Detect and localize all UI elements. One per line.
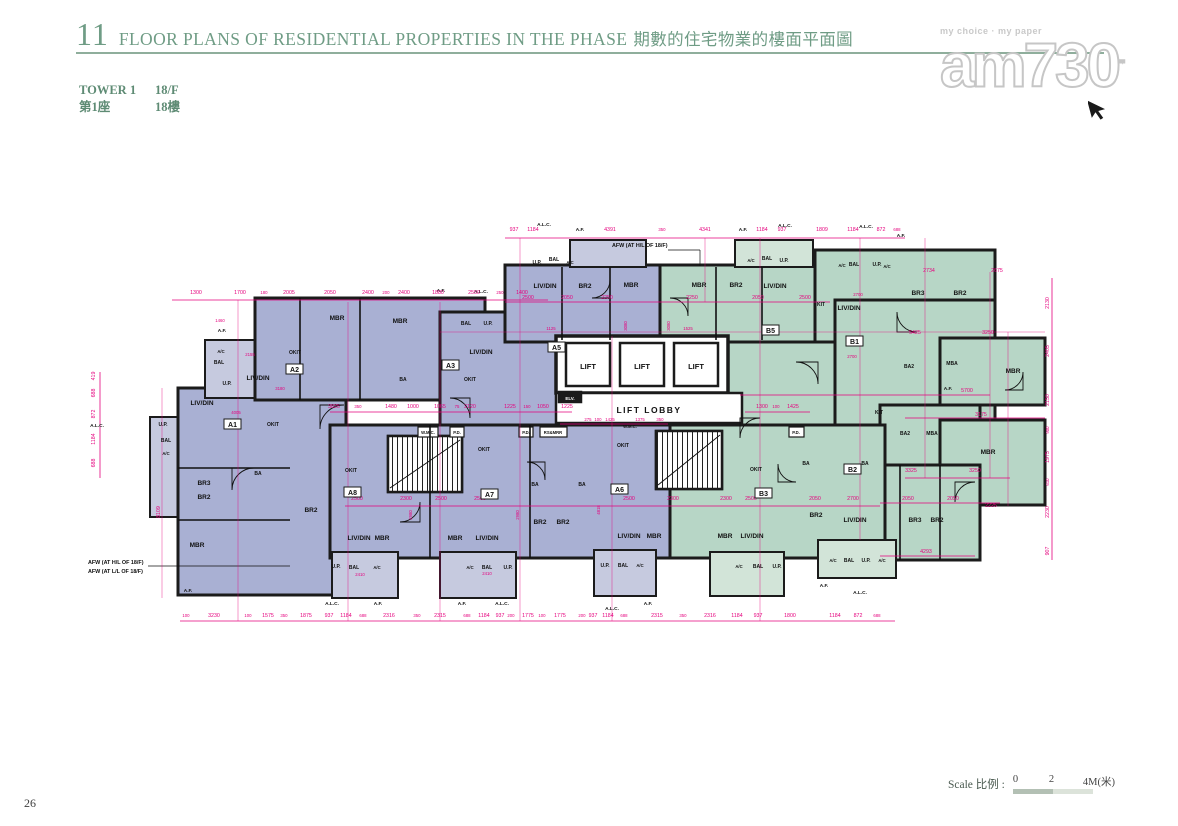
- plan-label: A/C: [636, 563, 643, 568]
- plan-label: 1225: [504, 404, 516, 410]
- plan-label: A.L.C.: [495, 601, 509, 607]
- plan-label: 2300: [667, 496, 679, 502]
- plan-label: KIT: [817, 302, 825, 308]
- plan-label: A.L.C.: [90, 423, 104, 429]
- plan-label: 2410: [482, 571, 492, 576]
- plan-label: LIV/DIN: [740, 533, 763, 540]
- plan-room-block: [505, 265, 660, 342]
- plan-label: MBA: [926, 431, 938, 437]
- plan-label: BR3: [911, 290, 924, 297]
- plan-label: MBR: [393, 318, 408, 325]
- plan-label: 4341: [699, 227, 711, 233]
- plan-label: MBR: [718, 533, 733, 540]
- scale-tick-2: 2: [1049, 774, 1054, 785]
- plan-label: 1125: [546, 326, 556, 331]
- plan-label: 2050: [324, 290, 336, 296]
- unit-badge-label: B5: [766, 328, 775, 335]
- plan-label: 4818: [596, 505, 601, 515]
- plan-label: BR2: [729, 282, 742, 289]
- plan-label: U.P.: [872, 262, 882, 268]
- plan-label: 688: [91, 459, 97, 468]
- plan-label: 907: [1045, 547, 1051, 556]
- plan-label: 2050: [902, 496, 914, 502]
- plan-label: 688: [893, 227, 901, 232]
- plan-label: 3325: [905, 468, 917, 474]
- plan-label: 4293: [920, 549, 932, 555]
- scale-segment-light: [1053, 789, 1093, 794]
- unit-badge-label: A1: [228, 422, 237, 429]
- plan-room-block: [205, 340, 257, 398]
- plan-label: 4391: [604, 227, 616, 233]
- plan-label: OKIT: [617, 443, 629, 449]
- plan-label: 2225: [985, 503, 997, 509]
- plan-label: A.F.: [944, 386, 953, 392]
- plan-label: 1375: [635, 417, 645, 422]
- plan-label: U.P.: [532, 260, 542, 266]
- plan-label: 1000: [407, 404, 419, 410]
- plan-label: 937: [496, 613, 505, 619]
- plan-label: 2500: [799, 295, 811, 301]
- plan-label: OKIT: [464, 377, 476, 383]
- unit-badge-label: A7: [485, 492, 494, 499]
- plan-label: U.P.: [503, 565, 513, 571]
- scale-tick-4m: 4M(米): [1083, 774, 1115, 789]
- plan-label: 100: [182, 613, 190, 618]
- plan-label: LIFT: [688, 362, 704, 371]
- plan-label: BA2: [904, 364, 914, 370]
- plan-label: 2316: [383, 613, 395, 619]
- plan-label: LIV/DIN: [533, 283, 556, 290]
- plan-label: BAL: [844, 558, 854, 564]
- plan-label: P.D.: [522, 430, 530, 435]
- plan-label: 275: [584, 417, 592, 422]
- plan-label: W.M.C.: [623, 424, 637, 429]
- plan-label: U.P.: [222, 381, 232, 387]
- unit-badge-label: A8: [348, 490, 357, 497]
- plan-label: 2400: [398, 290, 410, 296]
- unit-badge-label: A5: [552, 345, 561, 352]
- plan-label: AFW (AT L/L OF 18/F): [88, 569, 143, 575]
- plan-label: BAL: [549, 257, 559, 263]
- plan-label: BAL: [461, 321, 471, 327]
- plan-label: MBA: [946, 361, 958, 367]
- plan-label: OKIT: [267, 422, 279, 428]
- plan-label: BA: [399, 377, 407, 383]
- plan-label: 100: [772, 404, 780, 409]
- plan-label: 872: [854, 613, 863, 619]
- plan-label: A/C: [829, 558, 836, 563]
- plan-label: LIV/DIN: [617, 533, 640, 540]
- plan-label: 937: [325, 613, 334, 619]
- plan-label: 2050: [561, 295, 573, 301]
- plan-label: 3175: [975, 412, 987, 418]
- plan-room-block: [178, 388, 346, 595]
- plan-label: OKIT: [478, 447, 490, 453]
- plan-label: 2550: [468, 290, 480, 296]
- plan-label: 610: [1045, 478, 1050, 486]
- plan-label: 2050: [947, 496, 959, 502]
- plan-label: 1184: [340, 613, 351, 619]
- plan-label: MBR: [692, 282, 707, 289]
- plan-label: A.L.C.: [325, 601, 339, 607]
- plan-label: A.F.: [218, 328, 227, 334]
- plan-label: A.F.: [644, 601, 653, 607]
- plan-label: 75: [455, 404, 460, 409]
- plan-label: AFW (AT H/L OF 18/F): [88, 560, 144, 566]
- plan-label: U.P.: [600, 563, 610, 569]
- plan-label: P.D.: [453, 430, 461, 435]
- plan-label: BA: [861, 461, 869, 467]
- plan-label: MBR: [624, 282, 639, 289]
- plan-label: 1065: [434, 404, 446, 410]
- plan-label: BA: [254, 471, 262, 477]
- plan-label: 1184: [478, 613, 489, 619]
- plan-label: BR2: [533, 519, 546, 526]
- plan-label: 8109: [156, 506, 162, 518]
- plan-label: MBR: [330, 315, 345, 322]
- plan-label: A.F.: [184, 588, 193, 594]
- plan-label: LIV/DIN: [469, 349, 492, 356]
- plan-label: BAL: [753, 564, 763, 570]
- unit-badge-label: B2: [848, 467, 857, 474]
- plan-label: 200: [382, 290, 390, 295]
- plan-label: P.D.: [792, 430, 800, 435]
- plan-room-block: [710, 552, 784, 596]
- plan-label: A.F.: [739, 227, 748, 233]
- plan-label: A/C: [217, 349, 224, 354]
- plan-label: AFW (AT H/L OF 18/F): [612, 243, 668, 249]
- plan-label: KIT: [875, 410, 883, 416]
- plan-label: 1050: [537, 404, 549, 410]
- plan-label: 1525: [683, 326, 693, 331]
- plan-label: LIV/DIN: [763, 283, 786, 290]
- plan-label: BA2: [900, 431, 910, 437]
- plan-label: 3230: [208, 613, 220, 619]
- plan-label: 200: [578, 613, 586, 618]
- plan-label: 1425: [605, 417, 615, 422]
- plan-label: A.L.C.: [859, 224, 873, 230]
- plan-label: 2700: [847, 496, 859, 502]
- plan-label: BAL: [618, 563, 628, 569]
- plan-label: 350: [413, 613, 421, 618]
- plan-label: LIV/DIN: [347, 535, 370, 542]
- plan-label: 2120: [464, 404, 476, 410]
- plan-label: 100: [538, 613, 546, 618]
- plan-label: 350: [679, 613, 687, 618]
- plan-label: OKIT: [289, 350, 301, 356]
- plan-label: 2315: [434, 613, 446, 619]
- plan-label: U.P.: [861, 558, 871, 564]
- plan-label: 350: [354, 404, 362, 409]
- plan-label: 2675: [991, 268, 1003, 274]
- plan-label: MBR: [190, 542, 205, 549]
- plan-room-block: [150, 417, 180, 517]
- plan-label: LIFT: [634, 362, 650, 371]
- plan-label: 688: [463, 613, 471, 618]
- plan-label: OKIT: [750, 467, 762, 473]
- plan-label: 1480: [385, 404, 397, 410]
- plan-label: 900: [1045, 426, 1050, 434]
- plan-label: LIV/DIN: [475, 535, 498, 542]
- floor-plan-drawing: LIV/DINLIV/DINLIV/DINLIV/DINLIV/DINLIV/D…: [0, 0, 1178, 826]
- plan-label: 1875: [300, 613, 312, 619]
- plan-label: BR2: [953, 290, 966, 297]
- plan-label: 937: [778, 227, 787, 233]
- plan-label: A.F.: [576, 227, 585, 233]
- plan-label: U.P.: [158, 422, 168, 428]
- plan-label: A/C: [566, 260, 573, 265]
- plan-label: 2230: [1045, 506, 1051, 518]
- unit-badge-label: B1: [850, 339, 859, 346]
- plan-label: MBR: [1006, 368, 1021, 375]
- scale-bar-graphic: 0 2 4M(米): [1013, 776, 1163, 800]
- plan-label: 2734: [923, 268, 935, 274]
- plan-label: 872: [91, 410, 97, 419]
- plan-label: 1184: [527, 227, 538, 233]
- plan-label: 2500: [435, 496, 447, 502]
- plan-label: 1700: [234, 290, 246, 296]
- plan-room-block: [440, 552, 516, 598]
- plan-label: 350: [280, 613, 288, 618]
- plan-label: U.P.: [331, 564, 341, 570]
- plan-label: 2005: [283, 290, 295, 296]
- plan-label: 2500: [522, 295, 534, 301]
- plan-label: 1184: [602, 613, 613, 619]
- plan-label: BR2: [578, 283, 591, 290]
- plan-label: A.F.: [458, 601, 467, 607]
- plan-label: 2700: [853, 292, 863, 297]
- plan-label: BAL: [349, 565, 359, 571]
- plan-label: 2980: [515, 510, 520, 520]
- page-number: 26: [24, 796, 36, 811]
- plan-label: LIV/DIN: [190, 400, 213, 407]
- plan-label: 688: [359, 613, 367, 618]
- plan-label: A.F.: [820, 583, 829, 589]
- plan-label: ELV.: [565, 396, 574, 401]
- plan-label: 150: [523, 404, 531, 409]
- plan-label: A.F.: [374, 601, 383, 607]
- plan-room-block: [332, 552, 398, 598]
- plan-label: BA: [531, 482, 539, 488]
- plan-label: 1775: [554, 613, 566, 619]
- unit-badge-label: A3: [446, 363, 455, 370]
- plan-label: U.P.: [779, 258, 789, 264]
- plan-label: A/C: [466, 565, 473, 570]
- plan-label: A.L.C.: [537, 222, 551, 228]
- plan-label: A/C: [838, 263, 845, 268]
- plan-label: 1809: [816, 227, 828, 233]
- plan-label: MBR: [647, 533, 662, 540]
- plan-label: 3180: [275, 386, 285, 391]
- plan-label: A/C: [878, 558, 885, 563]
- plan-label: BA: [578, 482, 586, 488]
- brochure-page: 11 FLOOR PLANS OF RESIDENTIAL PROPERTIES…: [0, 0, 1178, 826]
- plan-label: 180: [260, 290, 268, 295]
- plan-label: 688: [620, 613, 628, 618]
- plan-label: MBR: [375, 535, 390, 542]
- plan-label: 937: [589, 613, 598, 619]
- plan-label: 2410: [355, 572, 365, 577]
- plan-label: 1300: [756, 404, 768, 410]
- plan-label: BAL: [161, 438, 171, 444]
- plan-label: BAL: [849, 262, 859, 268]
- plan-label: 2405: [1045, 345, 1051, 357]
- plan-label: 100: [244, 613, 252, 618]
- plan-label: 1300: [190, 290, 202, 296]
- plan-label: A/C: [373, 565, 380, 570]
- plan-label: 2700: [847, 354, 857, 359]
- plan-label: 937: [510, 227, 519, 233]
- plan-label: 2250: [686, 295, 698, 301]
- plan-label: LIV/DIN: [837, 305, 860, 312]
- plan-label: A.F.: [897, 233, 906, 239]
- plan-label: BR2: [556, 519, 569, 526]
- plan-label: U.P.: [483, 321, 493, 327]
- plan-label: RS&MRR: [544, 430, 562, 435]
- plan-label: 3250: [982, 330, 994, 336]
- plan-label: 2980: [408, 510, 413, 520]
- scale-segment-dark: [1013, 789, 1053, 794]
- plan-label: 1184: [756, 227, 767, 233]
- plan-label: BAL: [762, 256, 772, 262]
- plan-label: 100: [594, 417, 602, 422]
- plan-label: 1184: [91, 433, 97, 444]
- plan-label: BR3: [908, 517, 921, 524]
- plan-label: U.P.: [772, 564, 782, 570]
- plan-label: 1800: [784, 613, 796, 619]
- plan-label: BR2: [930, 517, 943, 524]
- unit-badge-label: A6: [615, 487, 624, 494]
- plan-label: 1425: [787, 404, 799, 410]
- plan-label: 2400: [362, 290, 374, 296]
- plan-label: 2250: [601, 295, 613, 301]
- plan-label: 688: [91, 389, 97, 398]
- plan-label: LIV/DIN: [843, 517, 866, 524]
- unit-badge-label: A2: [290, 367, 299, 374]
- plan-label: 1225: [561, 404, 573, 410]
- plan-label: 2300: [400, 496, 412, 502]
- plan-label: 3250: [969, 468, 981, 474]
- unit-badge-label: B3: [759, 491, 768, 498]
- plan-room-block: [594, 550, 656, 596]
- plan-label: A.L.C.: [853, 590, 867, 596]
- plan-label: A/C: [162, 451, 169, 456]
- plan-label: 872: [877, 227, 886, 233]
- plan-label: MBR: [981, 449, 996, 456]
- plan-label: LIFT: [580, 362, 596, 371]
- plan-label: 2316: [704, 613, 716, 619]
- plan-label: A/C: [735, 564, 742, 569]
- plan-label: A.L.C.: [605, 606, 619, 612]
- plan-label: 937: [754, 613, 763, 619]
- plan-label: BA: [802, 461, 810, 467]
- plan-label: BR2: [197, 494, 210, 501]
- plan-label: 1184: [731, 613, 742, 619]
- plan-label: 2150: [1045, 394, 1051, 406]
- scale-bar: Scale 比例 : 0 2 4M(米): [948, 776, 1163, 800]
- plan-label: 3825: [328, 404, 340, 410]
- plan-label: 3080: [666, 321, 671, 331]
- plan-label: 350: [658, 227, 666, 232]
- plan-label: 2500: [623, 496, 635, 502]
- scale-tick-0: 0: [1013, 774, 1018, 785]
- plan-label: 2050: [752, 295, 764, 301]
- plan-label: BAL: [214, 360, 224, 366]
- plan-label: W.M.C.: [421, 430, 435, 435]
- plan-label: 1880: [432, 290, 444, 296]
- plan-label: 1975: [1045, 451, 1051, 463]
- plan-label: 1575: [262, 613, 274, 619]
- plan-label: A/C: [883, 264, 890, 269]
- plan-label: 2300: [720, 496, 732, 502]
- plan-label: LIFT LOBBY: [616, 405, 681, 415]
- plan-label: A/C: [747, 258, 754, 263]
- plan-label: 250: [496, 290, 504, 295]
- plan-label: 1184: [847, 227, 858, 233]
- plan-label: 688: [873, 613, 881, 618]
- plan-label: BR2: [304, 507, 317, 514]
- plan-label: 2155: [245, 352, 255, 357]
- plan-label: 200: [507, 613, 515, 618]
- plan-label: LIV/DIN: [246, 375, 269, 382]
- plan-label: 1775: [522, 613, 534, 619]
- plan-label: OKIT: [345, 468, 357, 474]
- plan-label: 2315: [651, 613, 663, 619]
- plan-label: 419: [91, 372, 97, 381]
- plan-label: 2050: [809, 496, 821, 502]
- scale-label: Scale 比例 :: [948, 776, 1005, 792]
- plan-label: MBR: [448, 535, 463, 542]
- plan-label: 5425: [909, 330, 921, 336]
- plan-label: 350: [656, 417, 664, 422]
- plan-label: 1460: [215, 318, 225, 323]
- plan-label: BR2: [809, 512, 822, 519]
- plan-label: 3080: [623, 321, 628, 331]
- plan-label: BR3: [197, 480, 210, 487]
- plan-label: 1184: [829, 613, 840, 619]
- plan-label: 4005: [231, 410, 241, 415]
- plan-label: 5700: [961, 388, 973, 394]
- plan-label: 2130: [1045, 297, 1051, 309]
